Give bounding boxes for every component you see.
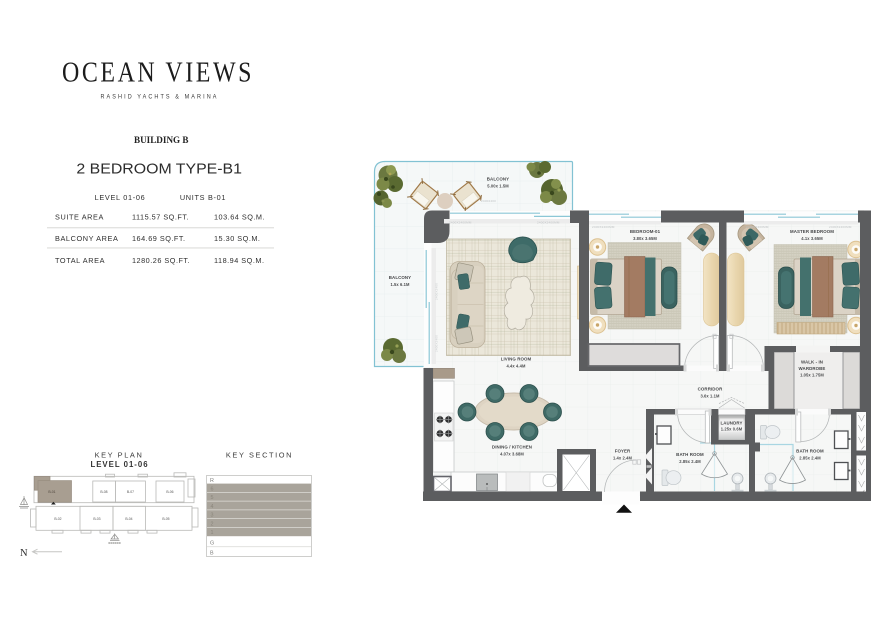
svg-text:WARDROBE: WARDROBE — [799, 366, 826, 371]
svg-text:4.1x 3.65M: 4.1x 3.65M — [801, 236, 823, 241]
svg-text:SUITE AREA: SUITE AREA — [55, 212, 104, 221]
svg-text:3: 3 — [211, 513, 214, 519]
svg-text:B-08: B-08 — [100, 490, 107, 494]
svg-text:2400X2400MM: 2400X2400MM — [829, 225, 852, 229]
svg-text:1.05x 1.75M: 1.05x 1.75M — [800, 373, 824, 378]
svg-text:BATH ROOM: BATH ROOM — [676, 452, 704, 457]
svg-text:RASHID YACHTS & MARINA: RASHID YACHTS & MARINA — [101, 94, 219, 101]
svg-text:4: 4 — [211, 504, 214, 510]
svg-text:KEY PLAN: KEY PLAN — [95, 450, 144, 459]
svg-text:2.85x 2.4M: 2.85x 2.4M — [799, 456, 821, 461]
svg-text:1.4x 2.4M: 1.4x 2.4M — [613, 456, 633, 461]
svg-text:MASTER BEDROOM: MASTER BEDROOM — [790, 229, 834, 234]
svg-text:DINING / KITCHEN: DINING / KITCHEN — [492, 445, 532, 450]
svg-text:B-01: B-01 — [48, 490, 55, 494]
svg-text:103.64 SQ.M.: 103.64 SQ.M. — [214, 212, 265, 221]
svg-text:2400X2400: 2400X2400 — [434, 283, 438, 300]
svg-text:BALCONY: BALCONY — [487, 177, 509, 182]
svg-text:B-07: B-07 — [127, 490, 134, 494]
svg-text:G: G — [210, 541, 214, 547]
svg-text:B-06: B-06 — [166, 490, 173, 494]
svg-text:2400X2400: 2400X2400 — [434, 335, 438, 352]
svg-text:1280.26 SQ.FT.: 1280.26 SQ.FT. — [132, 256, 190, 265]
svg-text:R: R — [210, 478, 214, 484]
svg-text:LAUNDRY: LAUNDRY — [720, 421, 742, 426]
svg-text:164.69 SQ.FT.: 164.69 SQ.FT. — [132, 234, 186, 243]
svg-text:LIVING ROOM: LIVING ROOM — [501, 357, 532, 362]
svg-text:1.5x 6.1M: 1.5x 6.1M — [390, 282, 410, 287]
svg-text:1.25x 0.6M: 1.25x 0.6M — [721, 427, 743, 432]
svg-text:BATH ROOM: BATH ROOM — [796, 449, 824, 454]
svg-text:4.4x 4.4M: 4.4x 4.4M — [506, 364, 526, 369]
svg-text:2400X2400MM: 2400X2400MM — [449, 221, 472, 225]
svg-text:15.30 SQ.M.: 15.30 SQ.M. — [214, 234, 260, 243]
svg-text:5.00x 1.5M: 5.00x 1.5M — [487, 184, 509, 189]
svg-text:B-05: B-05 — [162, 517, 169, 521]
svg-text:N: N — [20, 548, 28, 559]
svg-text:TOTAL AREA: TOTAL AREA — [55, 256, 105, 265]
svg-text:2 BEDROOM TYPE-B1: 2 BEDROOM TYPE-B1 — [76, 161, 242, 178]
svg-text:LEVEL 01-06: LEVEL 01-06 — [90, 460, 148, 469]
svg-text:24002400: 24002400 — [481, 199, 496, 203]
svg-text:2400X2400MM: 2400X2400MM — [537, 221, 560, 225]
svg-text:BALCONY: BALCONY — [389, 275, 411, 280]
svg-text:WALK - IN: WALK - IN — [801, 360, 823, 365]
svg-text:BEDROOM-01: BEDROOM-01 — [630, 229, 661, 234]
svg-text:2400X2400MM: 2400X2400MM — [746, 225, 769, 229]
svg-text:118.94 SQ.M.: 118.94 SQ.M. — [214, 256, 264, 265]
svg-text:5: 5 — [211, 495, 214, 501]
svg-text:6: 6 — [211, 487, 214, 493]
svg-text:2400X2400MM: 2400X2400MM — [592, 225, 615, 229]
svg-text:3.6x 1.1M: 3.6x 1.1M — [700, 394, 720, 399]
svg-text:B: B — [210, 550, 214, 556]
svg-text:B-02: B-02 — [54, 517, 61, 521]
svg-text:BUILDING B: BUILDING B — [134, 135, 189, 146]
svg-text:FOYER: FOYER — [615, 449, 631, 454]
svg-text:KEY SECTION: KEY SECTION — [226, 450, 293, 459]
svg-text:B-04: B-04 — [125, 517, 132, 521]
svg-text:1115.57 SQ.FT.: 1115.57 SQ.FT. — [132, 212, 189, 221]
svg-text:1: 1 — [211, 530, 214, 536]
svg-text:CORRIDOR: CORRIDOR — [698, 387, 723, 392]
svg-text:UNITS B-01: UNITS B-01 — [180, 193, 226, 202]
svg-text:LEVEL 01-06: LEVEL 01-06 — [95, 193, 146, 202]
svg-text:BALCONY AREA: BALCONY AREA — [55, 234, 118, 243]
svg-text:3.80x 3.65M: 3.80x 3.65M — [633, 236, 657, 241]
svg-text:OCEAN VIEWS: OCEAN VIEWS — [62, 58, 254, 89]
svg-text:2: 2 — [211, 522, 214, 528]
svg-text:2.85x 2.4M: 2.85x 2.4M — [679, 459, 701, 464]
svg-text:B-03: B-03 — [93, 517, 100, 521]
svg-text:4.07x 3.68M: 4.07x 3.68M — [500, 452, 524, 457]
